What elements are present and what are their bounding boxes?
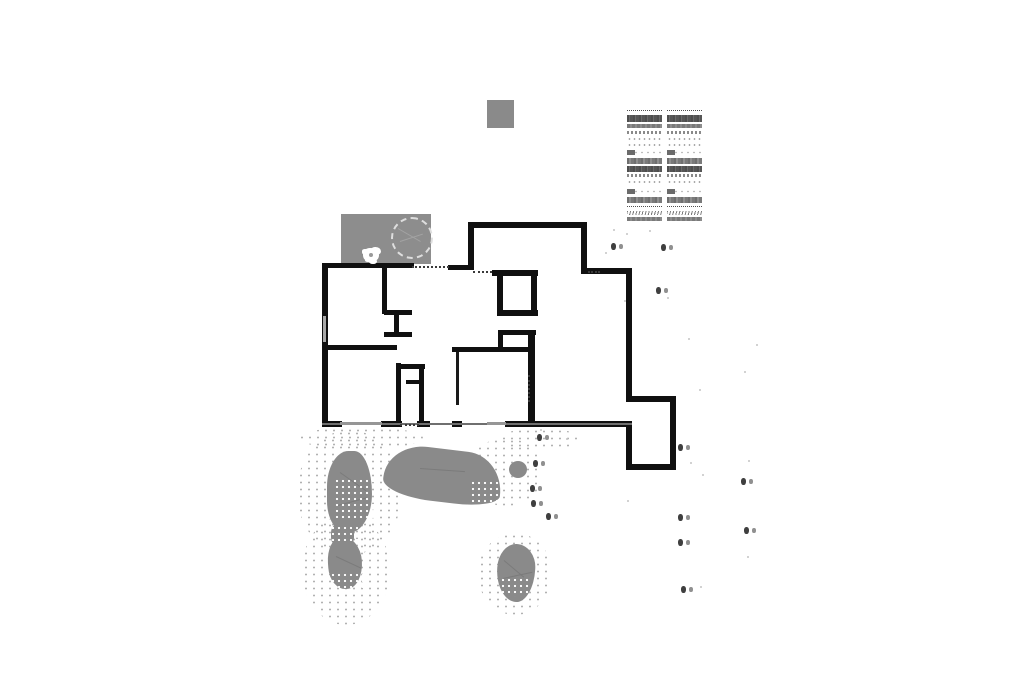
wall-segment [468, 222, 474, 269]
wall-segment [468, 222, 587, 228]
shrub-speckle [330, 572, 366, 588]
schedule-row [627, 217, 662, 221]
plant-keynote-marker [530, 485, 535, 492]
scatter-dot [690, 462, 692, 464]
floor-plan-canvas [0, 0, 1024, 699]
schedule-table [627, 110, 702, 221]
scatter-dot [667, 297, 669, 299]
schedule-row [627, 174, 662, 177]
wall-segment [382, 265, 387, 314]
wall-segment [581, 222, 587, 274]
scatter-dot [626, 233, 628, 235]
wall-segment [497, 310, 538, 316]
schedule-row [667, 124, 702, 128]
plant-keynote-marker [678, 514, 683, 521]
wall-segment [626, 268, 632, 401]
schedule-row [627, 189, 662, 194]
schedule-row [627, 115, 662, 122]
scatter-dot [627, 500, 629, 502]
scatter-dot [566, 438, 568, 440]
thin-line [340, 422, 382, 425]
schedule-row [667, 110, 702, 113]
plant-keynote-marker [744, 527, 749, 534]
plant-keynote-marker [546, 513, 551, 520]
stipple-halo [298, 427, 423, 449]
schedule-row [627, 197, 662, 203]
shrub-speckle [334, 478, 376, 518]
schedule-row [627, 124, 662, 128]
plant-keynote-marker [537, 434, 542, 441]
plant-keynote-marker [678, 444, 683, 451]
scatter-dot [700, 586, 702, 588]
wall-segment [419, 364, 424, 423]
wall-segment [322, 263, 328, 425]
shrub-speckle [330, 525, 358, 541]
schedule-row [667, 211, 702, 215]
dashed-opening [588, 271, 600, 273]
schedule-row [667, 174, 702, 177]
schedule-row [667, 150, 702, 155]
shrub-speckle [500, 577, 530, 597]
scatter-dot [744, 371, 746, 373]
scatter-dot [540, 429, 542, 431]
shrub-mass [509, 461, 527, 478]
pad-square [487, 100, 514, 128]
schedule-row [667, 166, 702, 172]
schedule-row [627, 150, 662, 155]
scatter-dot [613, 229, 615, 231]
plant-keynote-marker [678, 539, 683, 546]
wall-segment [497, 276, 503, 312]
schedule-row [627, 158, 662, 164]
wall-segment [498, 335, 503, 351]
wall-segment [626, 464, 676, 470]
schedule-row [667, 158, 702, 164]
scatter-dot [747, 556, 749, 558]
plant-keynote-marker [681, 586, 686, 593]
plant-keynote-marker [531, 500, 536, 507]
scatter-dot [699, 389, 701, 391]
wall-segment [384, 332, 412, 337]
schedule-row [627, 180, 662, 185]
schedule-row [667, 131, 702, 134]
wall-segment [327, 345, 397, 350]
dashed-opening [412, 266, 449, 268]
scatter-dot [702, 474, 704, 476]
wall-segment [670, 396, 676, 470]
dashed-opening [473, 271, 492, 273]
thin-line [323, 316, 326, 342]
schedule-row [667, 180, 702, 185]
dashed-opening [400, 424, 419, 426]
schedule-row [667, 143, 702, 147]
schedule-row [667, 189, 702, 194]
schedule-row [627, 206, 662, 209]
scatter-dot [756, 344, 758, 346]
schedule-row [667, 137, 702, 141]
scatter-dot [748, 460, 750, 462]
thin-line [456, 352, 459, 405]
wall-segment [322, 263, 414, 268]
schedule-row [667, 115, 702, 122]
schedule-row [627, 131, 662, 134]
plant-keynote-marker [661, 244, 666, 251]
shrub-speckle [470, 480, 502, 505]
schedule-row [627, 143, 662, 147]
wall-segment [396, 363, 401, 423]
scatter-dot [688, 338, 690, 340]
schedule-column [627, 110, 662, 221]
thin-line [487, 422, 506, 425]
scatter-dot [649, 230, 651, 232]
plant-keynote-marker [611, 243, 616, 250]
schedule-row [667, 197, 702, 203]
plant-keynote-marker [533, 460, 538, 467]
scatter-dot [605, 252, 607, 254]
dashed-opening [528, 375, 530, 402]
schedule-row [627, 137, 662, 141]
schedule-column [667, 110, 702, 221]
wall-segment [626, 421, 632, 470]
plant-keynote-marker [741, 478, 746, 485]
wall-segment [406, 380, 424, 384]
schedule-row [627, 166, 662, 172]
schedule-row [627, 110, 662, 113]
wall-segment [452, 347, 531, 352]
plant-keynote-marker [656, 287, 661, 294]
flower-symbol [363, 248, 379, 262]
schedule-row [627, 211, 662, 215]
schedule-row [667, 206, 702, 209]
schedule-row [667, 217, 702, 221]
wall-segment [626, 396, 676, 402]
